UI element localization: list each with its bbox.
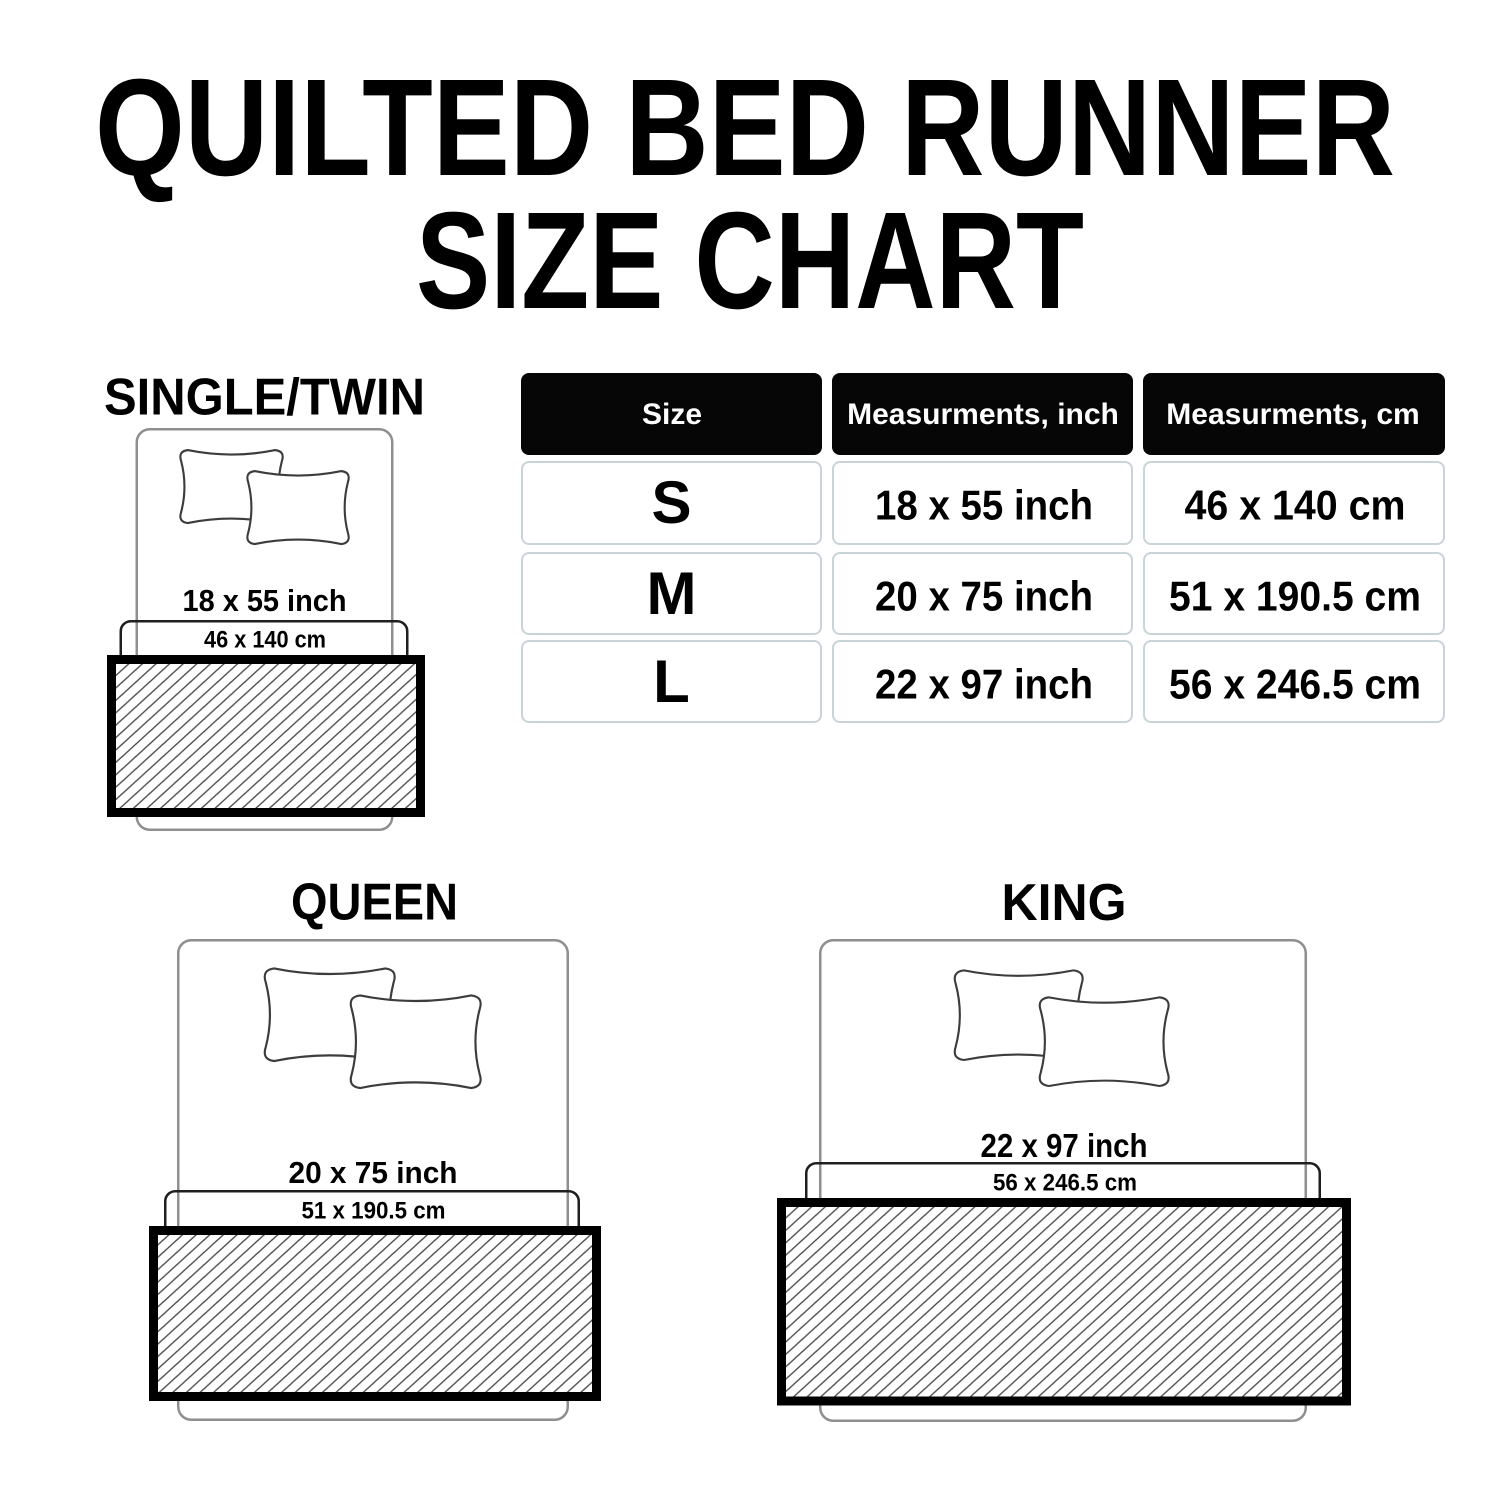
svg-text:22 x 97 inch: 22 x 97 inch <box>875 661 1093 708</box>
svg-text:56 x 246.5 cm: 56 x 246.5 cm <box>993 1170 1137 1197</box>
svg-text:46 x 140 cm: 46 x 140 cm <box>204 627 326 654</box>
svg-text:56 x 246.5 cm: 56 x 246.5 cm <box>1169 661 1421 708</box>
svg-text:18 x 55 inch: 18 x 55 inch <box>183 583 347 618</box>
svg-text:S: S <box>651 469 691 536</box>
svg-text:QUEEN: QUEEN <box>291 874 458 932</box>
svg-text:18 x 55 inch: 18 x 55 inch <box>875 482 1093 529</box>
svg-text:SINGLE/TWIN: SINGLE/TWIN <box>104 369 425 427</box>
svg-text:46 x 140 cm: 46 x 140 cm <box>1185 482 1406 529</box>
svg-text:M: M <box>647 560 697 627</box>
svg-text:L: L <box>653 648 690 715</box>
svg-text:Measurments, cm: Measurments, cm <box>1166 398 1419 431</box>
svg-text:KING: KING <box>1002 874 1127 932</box>
svg-text:SIZE CHART: SIZE CHART <box>416 184 1084 338</box>
svg-text:Size: Size <box>642 398 702 431</box>
svg-text:QUILTED BED RUNNER: QUILTED BED RUNNER <box>95 51 1395 205</box>
svg-text:22 x 97 inch: 22 x 97 inch <box>981 1128 1148 1165</box>
svg-text:Measurments, inch: Measurments, inch <box>847 398 1119 431</box>
svg-text:51 x 190.5 cm: 51 x 190.5 cm <box>302 1198 446 1225</box>
svg-text:51 x 190.5 cm: 51 x 190.5 cm <box>1169 573 1421 620</box>
svg-text:20 x 75 inch: 20 x 75 inch <box>875 573 1093 620</box>
svg-text:20 x 75 inch: 20 x 75 inch <box>289 1155 458 1190</box>
